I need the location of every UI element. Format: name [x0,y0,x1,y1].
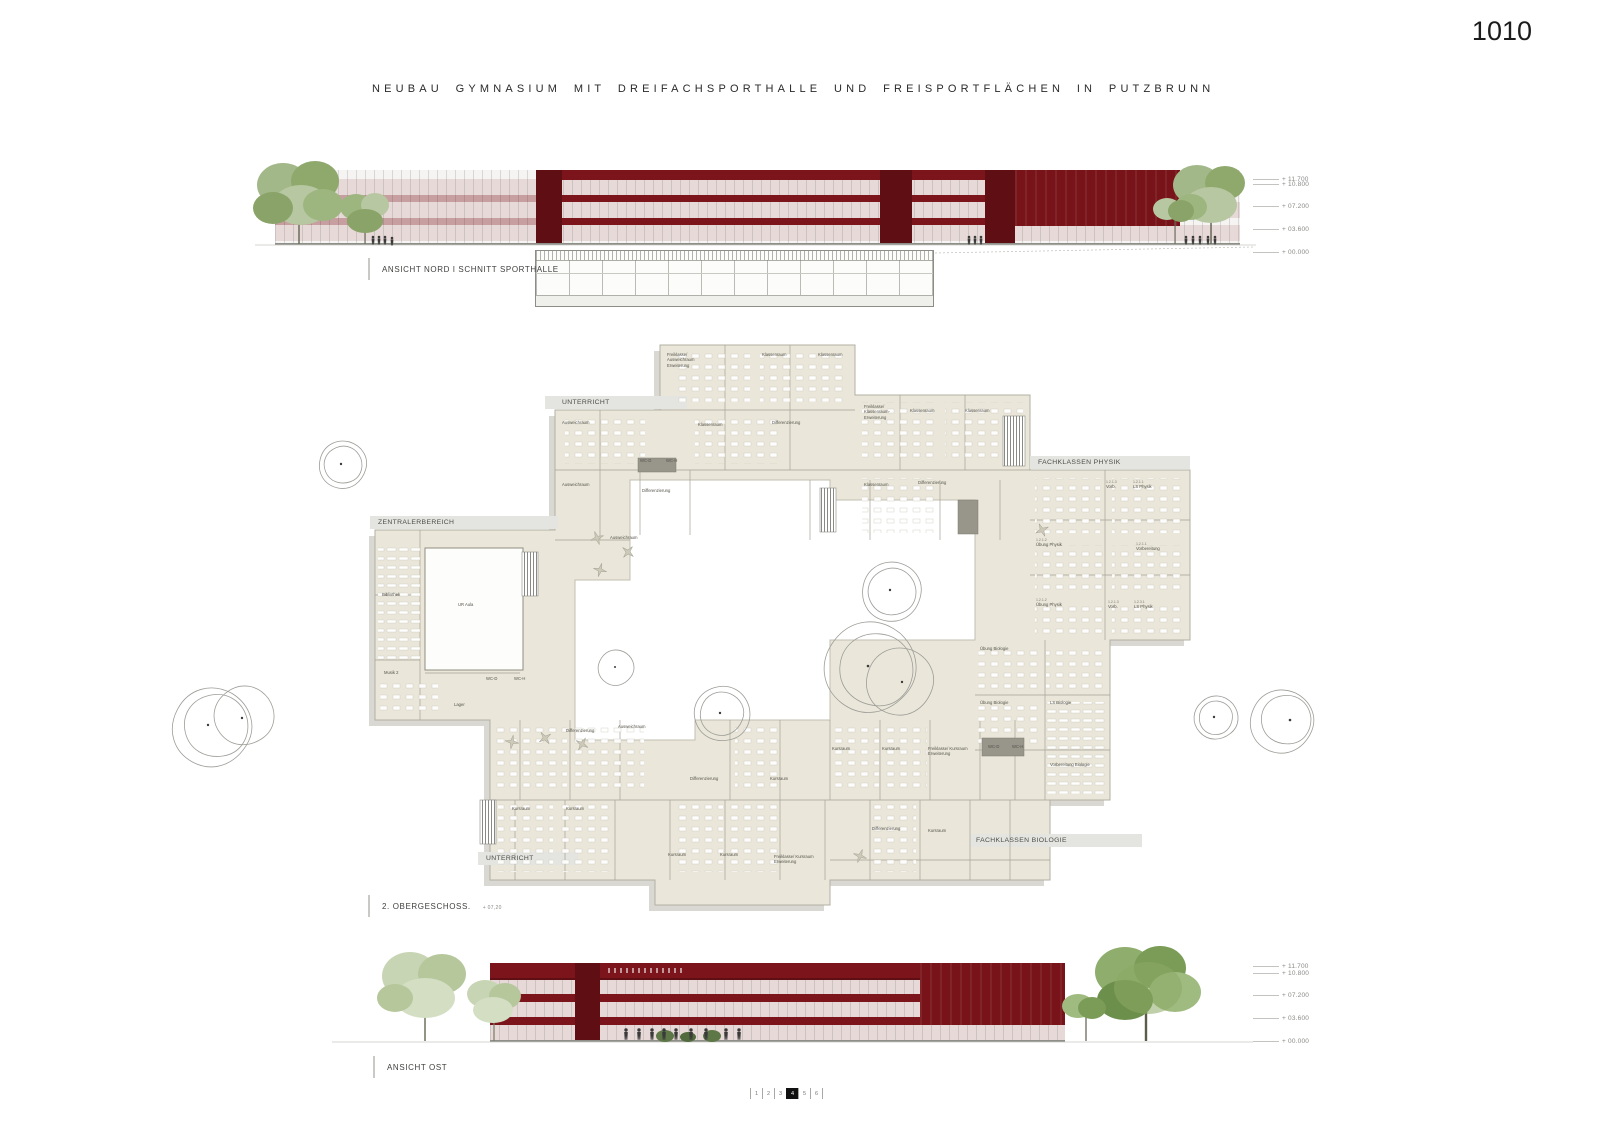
elevation-east-drawing [330,940,1255,1055]
aula-room [425,548,523,670]
tree-icon [377,952,466,1041]
floor-plan-drawing: Freiklasse/ Ausweichraum ErweiterungKlas… [170,330,1330,930]
sheet-number: 1010 [1472,16,1532,47]
level-mark: + 00.000 [1253,1038,1309,1045]
tree-icon [1153,198,1194,244]
caption-bar [368,895,370,917]
caption-bar [373,1056,375,1078]
level-mark: + 11.700 [1253,963,1309,970]
tree-icon [340,193,389,244]
level-mark: + 10.800 [1253,970,1309,977]
person-figure [372,236,1217,246]
caption-bar [368,258,370,280]
caption-floor-level: + 07,20 [483,905,502,917]
sporthalle-section-drawing [535,250,934,307]
page-button-3[interactable]: 3 [774,1088,786,1099]
elevation-north-drawing [253,143,1258,255]
page-button-1[interactable]: 1 [750,1088,762,1099]
board-title: NEUBAU GYMNASIUM MIT DREIFACHSPORTHALLE … [372,83,1214,95]
elevation-east-decor [330,940,1255,1055]
drawing-sheet: 1010 NEUBAU GYMNASIUM MIT DREIFACHSPORTH… [0,0,1600,1131]
elevation-north-decor [253,143,1258,255]
page-button-5[interactable]: 5 [798,1088,810,1099]
caption-north-text: ANSICHT NORD I SCHNITT SPORTHALLE [382,265,559,280]
caption-floor-text: 2. OBERGESCHOSS. [382,902,471,917]
tree-icon [1095,946,1201,1041]
level-mark: + 03.600 [1253,1015,1309,1022]
page-button-6[interactable]: 6 [810,1088,823,1099]
level-marks-east: + 11.700+ 10.800+ 07.200+ 03.600+ 00.000 [1253,0,1353,1131]
caption-floor: 2. OBERGESCHOSS. + 07,20 [368,895,502,917]
page-selector: 123456 [750,1088,823,1099]
tree-icon [1062,994,1106,1041]
caption-east-text: ANSICHT OST [387,1063,447,1078]
page-button-2[interactable]: 2 [762,1088,774,1099]
caption-north: ANSICHT NORD I SCHNITT SPORTHALLE [368,258,559,280]
tree-icon [467,980,521,1041]
caption-east: ANSICHT OST [373,1056,447,1078]
page-button-4[interactable]: 4 [786,1088,798,1099]
bush-icon [656,1030,721,1042]
floor-plan-svg [170,330,1330,930]
tree-icon [253,161,343,244]
level-mark: + 07.200 [1253,992,1309,999]
